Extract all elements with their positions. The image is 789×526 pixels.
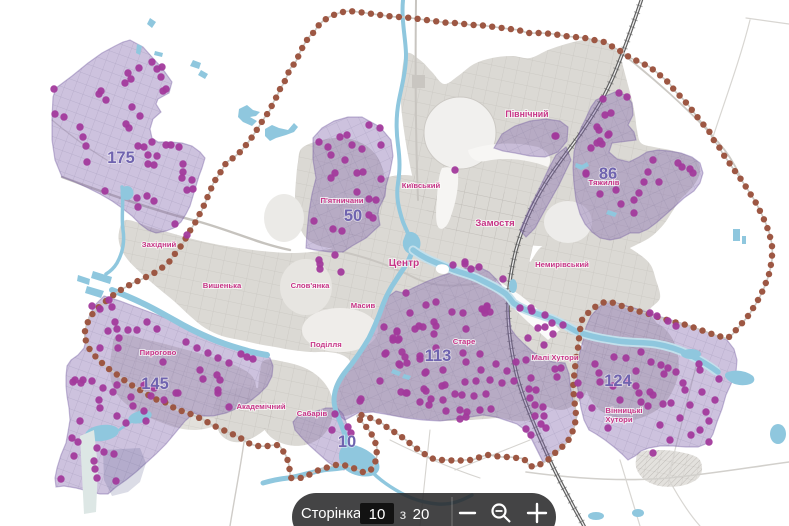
svg-text:175: 175 xyxy=(107,149,135,167)
svg-text:Замостя: Замостя xyxy=(475,218,514,229)
svg-text:Пирогово: Пирогово xyxy=(140,348,177,357)
svg-text:Малі Хутори: Малі Хутори xyxy=(531,353,578,362)
svg-text:Сабарів: Сабарів xyxy=(297,409,328,418)
svg-text:Центр: Центр xyxy=(389,258,420,269)
svg-text:П'ятничани: П'ятничани xyxy=(320,196,363,205)
svg-text:Київський: Київський xyxy=(402,181,441,190)
svg-text:Масив: Масив xyxy=(351,301,376,310)
svg-text:145: 145 xyxy=(141,375,169,393)
svg-text:Сторінка: Сторінка xyxy=(301,506,362,522)
svg-text:50: 50 xyxy=(344,207,362,225)
svg-text:Північний: Північний xyxy=(505,109,548,119)
svg-text:з: з xyxy=(400,506,406,522)
svg-text:Тяжилів: Тяжилів xyxy=(589,178,620,187)
svg-text:Хутори: Хутори xyxy=(605,415,632,424)
svg-text:Академічний: Академічний xyxy=(236,402,285,411)
svg-text:20: 20 xyxy=(413,506,430,523)
svg-text:Немирівський: Немирівський xyxy=(535,260,589,269)
svg-text:Вінницькі: Вінницькі xyxy=(605,406,642,415)
svg-text:124: 124 xyxy=(604,372,632,390)
svg-text:Старе: Старе xyxy=(453,337,476,346)
svg-text:113: 113 xyxy=(425,347,452,365)
svg-text:Західний: Західний xyxy=(142,240,177,249)
svg-text:Поділля: Поділля xyxy=(310,340,341,349)
svg-text:10: 10 xyxy=(369,506,386,523)
svg-text:Вишенька: Вишенька xyxy=(203,281,242,290)
svg-text:10: 10 xyxy=(338,433,356,451)
svg-text:Слов'янка: Слов'янка xyxy=(291,281,331,290)
